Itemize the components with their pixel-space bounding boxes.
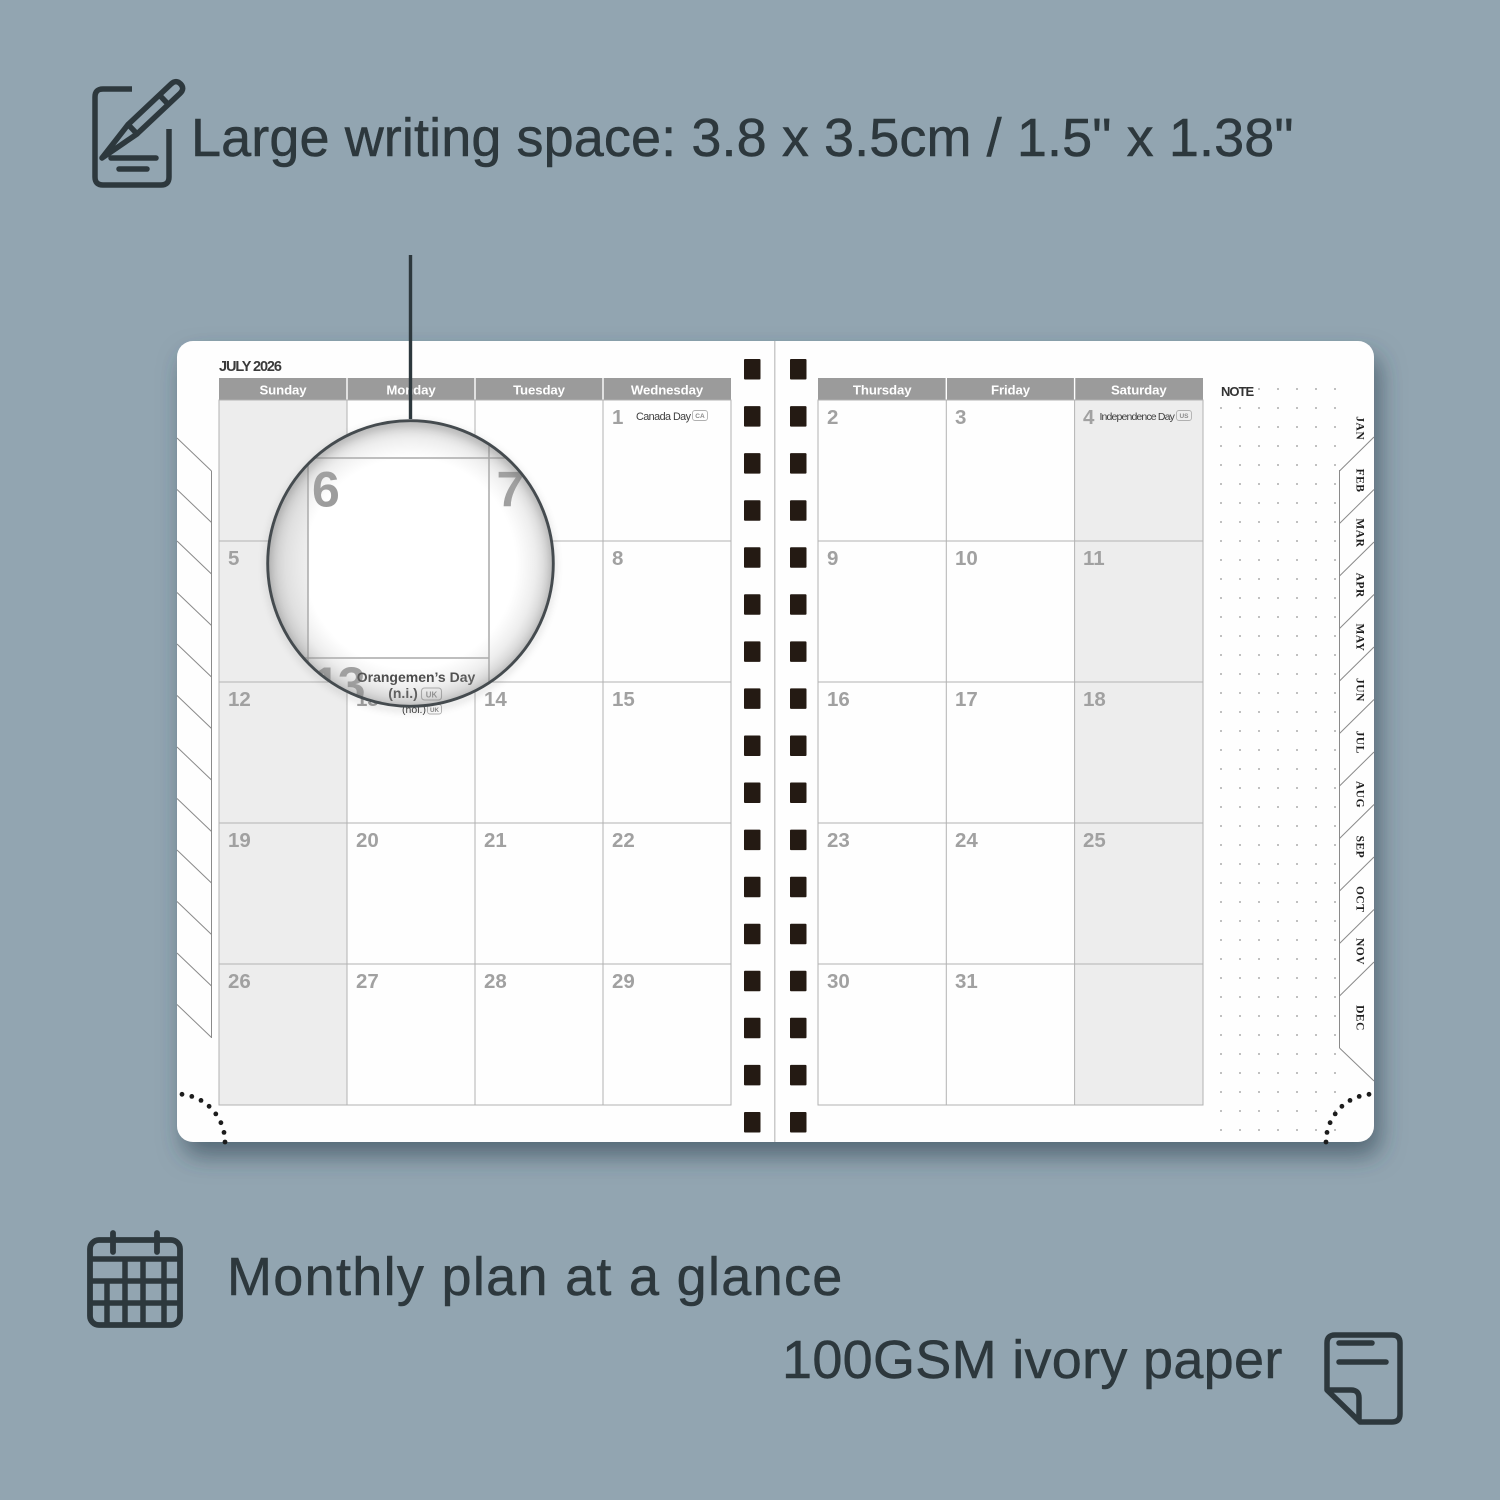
svg-text:16: 16: [827, 688, 850, 711]
svg-text:NOTE: NOTE: [1221, 384, 1254, 399]
svg-text:28: 28: [484, 970, 507, 993]
svg-text:Thursday: Thursday: [853, 383, 912, 398]
svg-text:AUG: AUG: [1354, 781, 1366, 808]
svg-text:Tuesday: Tuesday: [513, 383, 566, 398]
svg-text:Saturday: Saturday: [1111, 383, 1167, 398]
svg-text:1: 1: [612, 406, 623, 429]
svg-text:19: 19: [228, 829, 251, 852]
svg-text:Independence Day: Independence Day: [1099, 411, 1175, 423]
svg-text:8: 8: [612, 547, 623, 570]
svg-text:15: 15: [612, 688, 635, 711]
svg-text:25: 25: [1083, 829, 1106, 852]
svg-text:Canada Day: Canada Day: [636, 411, 692, 423]
svg-text:MAR: MAR: [1354, 518, 1366, 547]
svg-text:FEB: FEB: [1354, 469, 1366, 493]
svg-text:JUN: JUN: [1354, 678, 1366, 702]
svg-text:JAN: JAN: [1354, 416, 1366, 440]
svg-text:5: 5: [228, 547, 239, 570]
svg-text:DEC: DEC: [1354, 1005, 1366, 1031]
svg-text:12: 12: [228, 688, 251, 711]
svg-text:CA: CA: [695, 413, 705, 420]
svg-text:31: 31: [955, 970, 978, 993]
svg-text:UK: UK: [430, 707, 439, 714]
svg-text:9: 9: [827, 547, 838, 570]
svg-text:US: US: [1179, 413, 1189, 420]
svg-text:3: 3: [955, 406, 966, 429]
svg-text:24: 24: [955, 829, 978, 852]
svg-text:Friday: Friday: [991, 383, 1031, 398]
svg-text:18: 18: [1083, 688, 1106, 711]
svg-text:10: 10: [955, 547, 978, 570]
svg-text:Sunday: Sunday: [259, 383, 307, 398]
svg-text:30: 30: [827, 970, 850, 993]
svg-text:NOV: NOV: [1354, 938, 1366, 965]
svg-text:14: 14: [484, 688, 507, 711]
svg-text:4: 4: [1083, 406, 1095, 429]
svg-text:APR: APR: [1354, 573, 1366, 598]
svg-text:MAY: MAY: [1354, 624, 1366, 652]
svg-text:29: 29: [612, 970, 635, 993]
svg-text:2: 2: [827, 406, 838, 429]
svg-text:JULY 2026: JULY 2026: [219, 359, 282, 375]
svg-text:27: 27: [356, 970, 379, 993]
svg-text:17: 17: [955, 688, 978, 711]
svg-text:11: 11: [1083, 547, 1105, 570]
svg-text:22: 22: [612, 829, 635, 852]
svg-text:SEP: SEP: [1354, 836, 1366, 859]
svg-text:OCT: OCT: [1354, 886, 1366, 912]
svg-text:20: 20: [356, 829, 379, 852]
svg-text:21: 21: [484, 829, 507, 852]
svg-text:Wednesday: Wednesday: [631, 383, 704, 398]
svg-text:26: 26: [228, 970, 251, 993]
svg-text:23: 23: [827, 829, 850, 852]
svg-text:JUL: JUL: [1354, 731, 1366, 754]
